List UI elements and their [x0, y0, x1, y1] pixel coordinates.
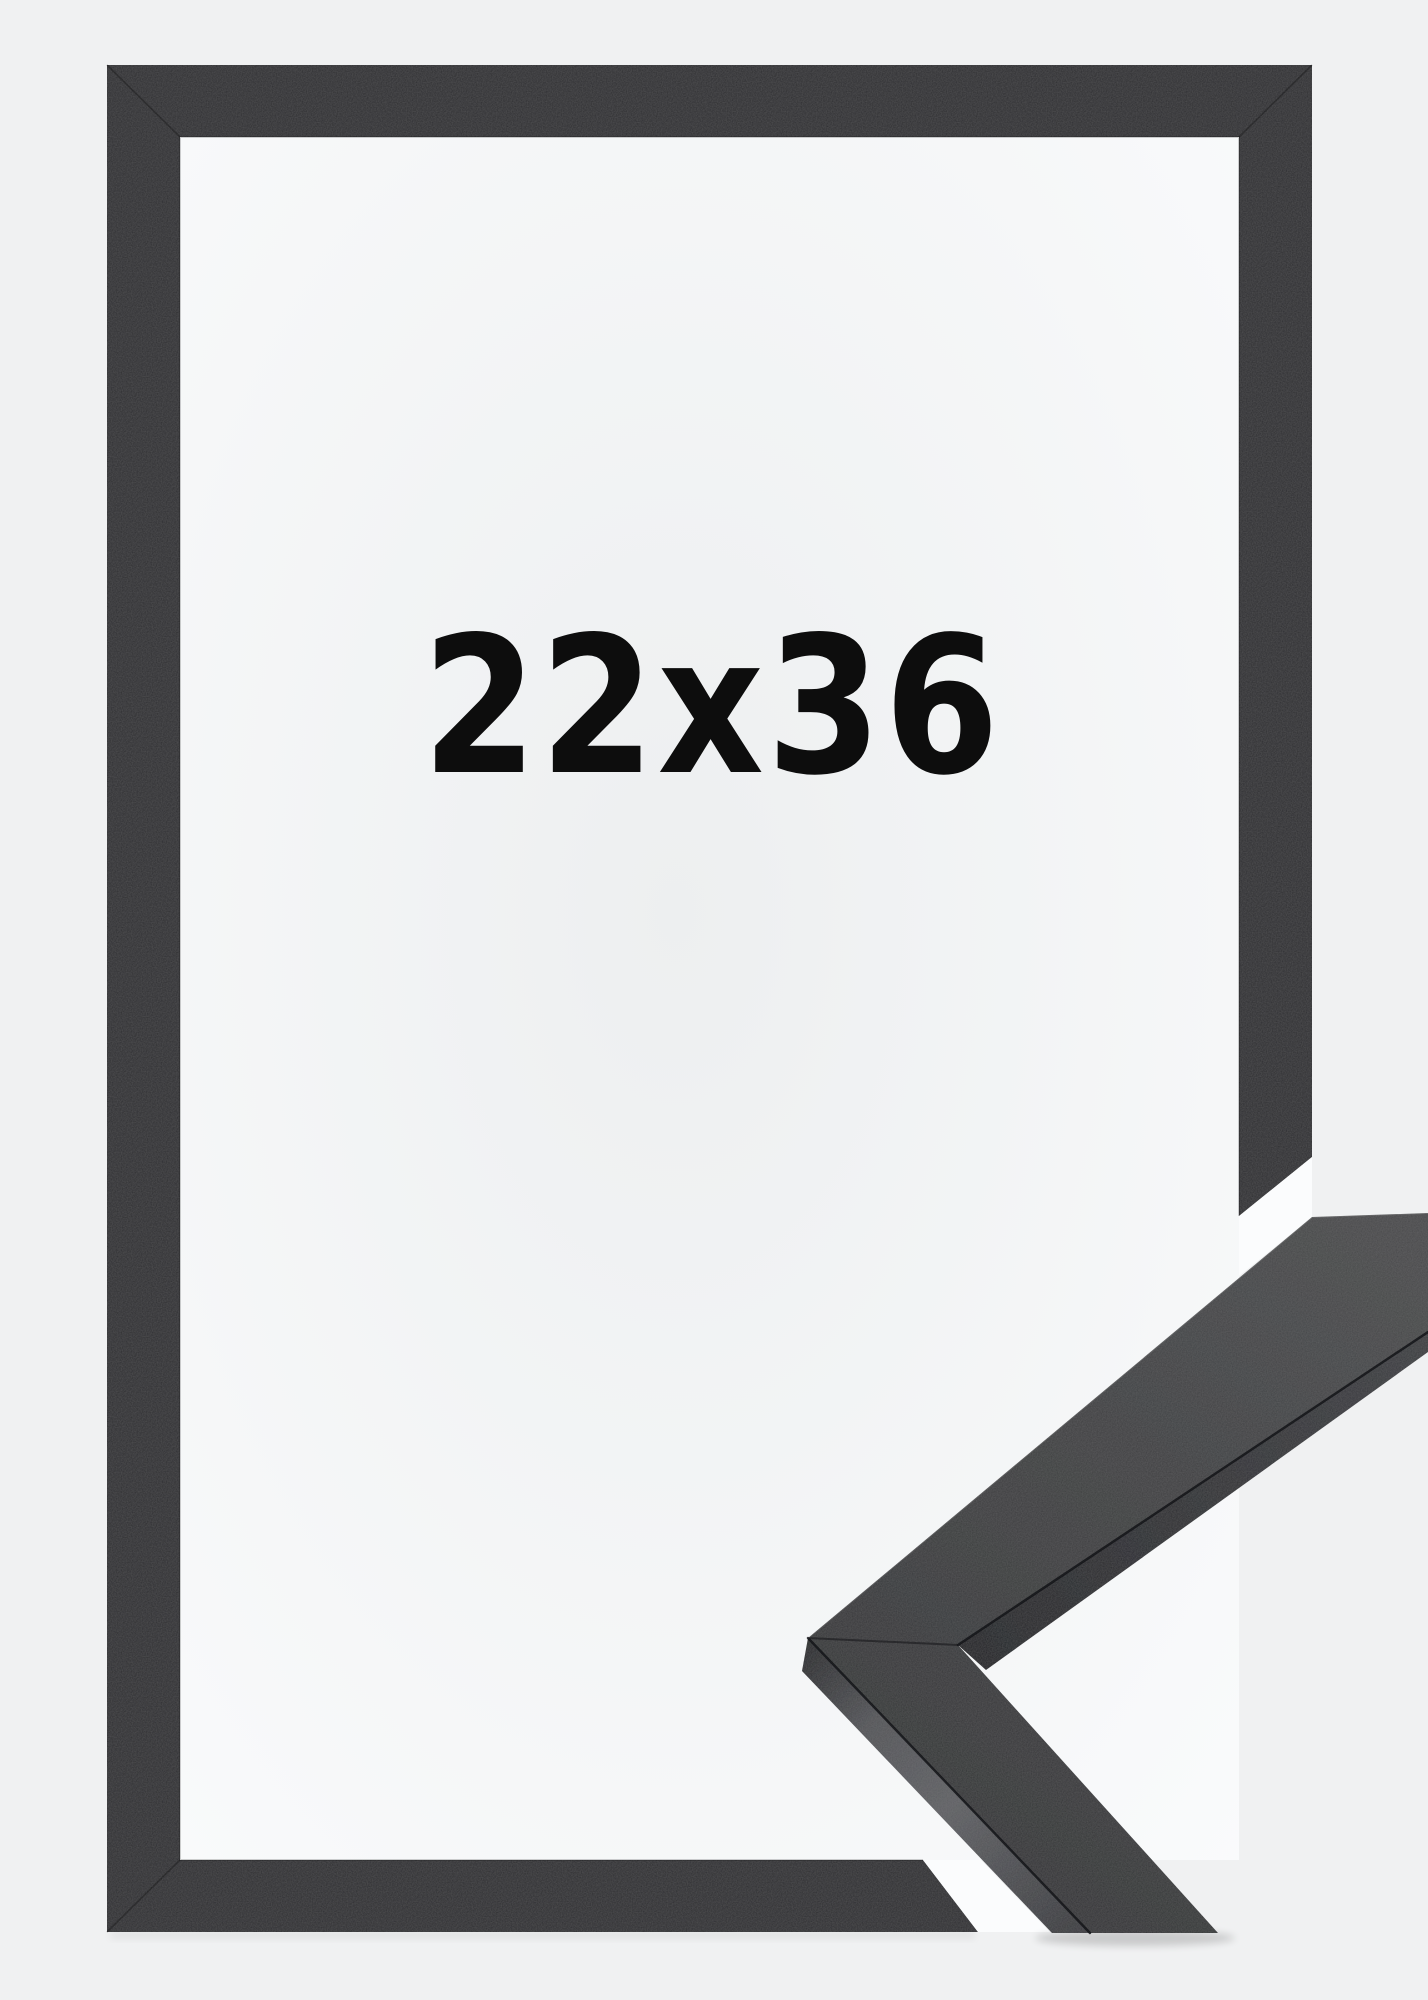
- frame-product-image: 22x36: [0, 0, 1428, 2000]
- product-photo: 22x36: [0, 0, 1428, 2000]
- size-label: 22x36: [422, 596, 1002, 817]
- frame-bottom-shadow: [110, 1931, 975, 1939]
